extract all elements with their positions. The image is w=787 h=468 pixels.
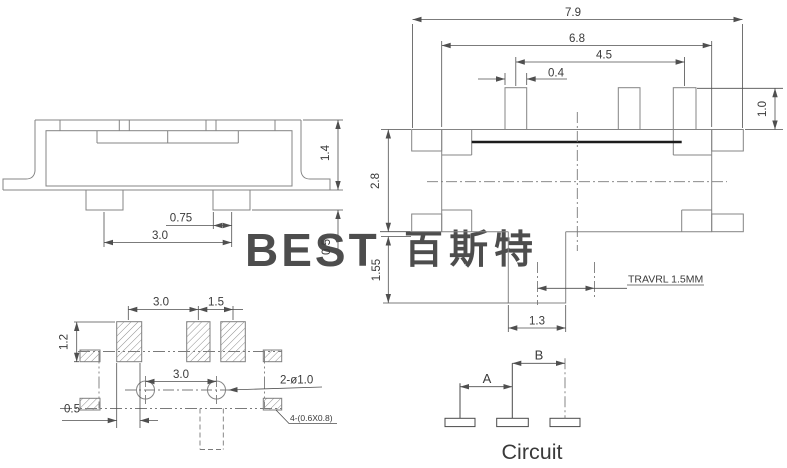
dim-fp-pad-pitch-left: 3.0: [153, 297, 169, 309]
dim-top-pin-height: 1.0: [757, 101, 769, 117]
watermark-cjk: 百斯特: [404, 229, 539, 272]
circuit-diagram: A B Circuit: [445, 348, 580, 465]
technical-drawing-page: BEST 百斯特 1.4 0.5 0.75 3.0: [0, 0, 787, 468]
dim-top-body-depth: 2.8: [370, 173, 382, 189]
dim-top-body-width: 6.8: [569, 33, 585, 45]
circuit-caption: Circuit: [502, 440, 563, 464]
dim-fp-pad-pitch-right: 1.5: [208, 297, 224, 309]
dim-fp-hole-pitch: 3.0: [173, 369, 189, 381]
dim-top-overall-width: 7.9: [565, 7, 581, 19]
side-pad-callout: 4-(0.6X0.8): [290, 413, 333, 423]
dim-top-knob-depth: 1.55: [371, 259, 383, 281]
drawing-canvas: BEST 百斯特 1.4 0.5 0.75 3.0: [0, 0, 787, 468]
dim-top-knob-width: 1.3: [529, 316, 545, 328]
watermark-latin: BEST: [245, 224, 380, 276]
dim-side-height: 1.4: [320, 144, 332, 161]
travel-note: TRAVRL 1.5MM: [628, 274, 703, 286]
dim-side-standoff: 0.5: [321, 239, 333, 255]
top-view-drawing: 7.9 6.8 4.5 0.4 1.0 2.8 1.55 1.3 TRAVRL …: [370, 7, 783, 332]
dim-circuit-a: A: [483, 371, 492, 386]
dim-top-pin-span: 4.5: [596, 50, 612, 62]
dim-side-pad-width: 0.75: [170, 213, 192, 225]
dim-top-pin-width: 0.4: [548, 68, 565, 80]
hole-callout: 2-ø1.0: [280, 375, 313, 387]
dim-circuit-b: B: [535, 348, 544, 363]
dim-side-pad-pitch: 3.0: [152, 230, 168, 242]
dim-fp-pad-offset: 0.5: [64, 404, 80, 416]
footprint-drawing: 3.0 1.5 1.2 3.0 0.5 2-ø1.0 4-(0.6X0.8): [59, 297, 338, 450]
dim-fp-pad-height: 1.2: [59, 334, 71, 350]
